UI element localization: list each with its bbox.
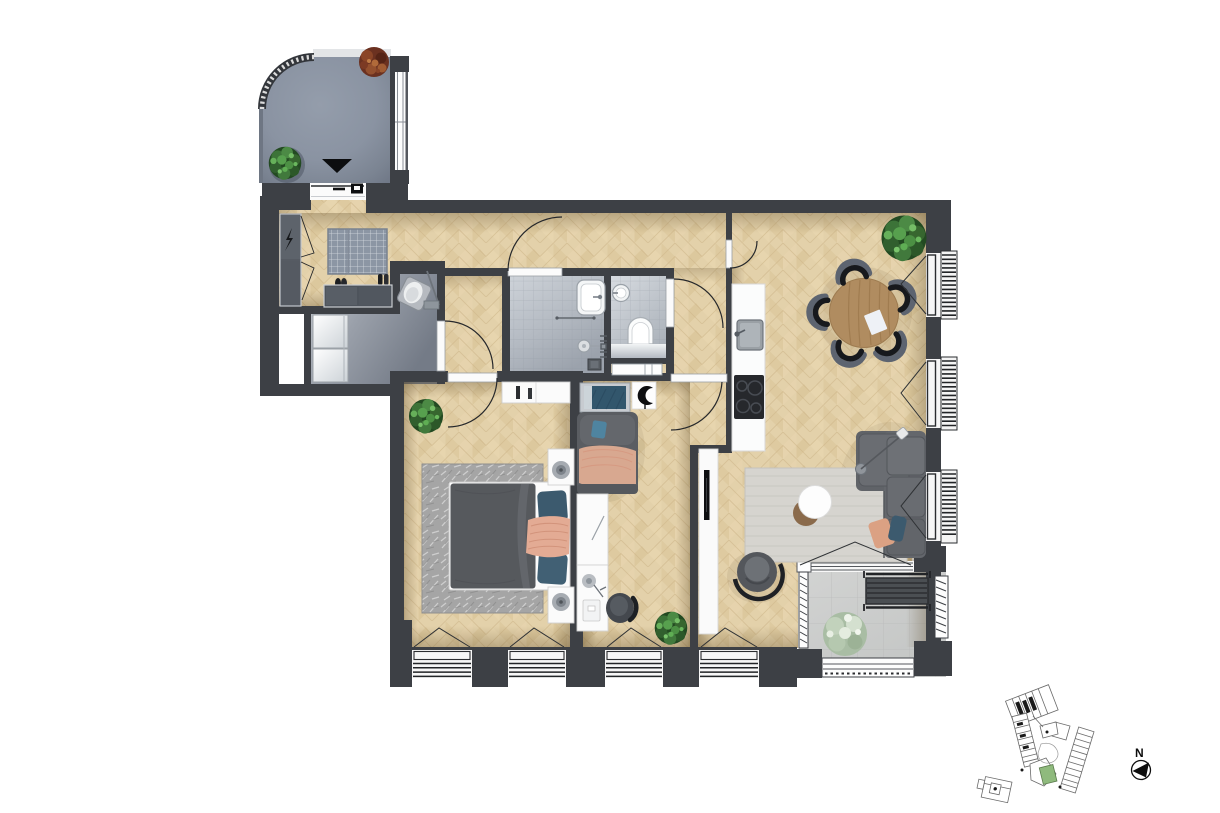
svg-text:N: N	[1135, 746, 1144, 760]
